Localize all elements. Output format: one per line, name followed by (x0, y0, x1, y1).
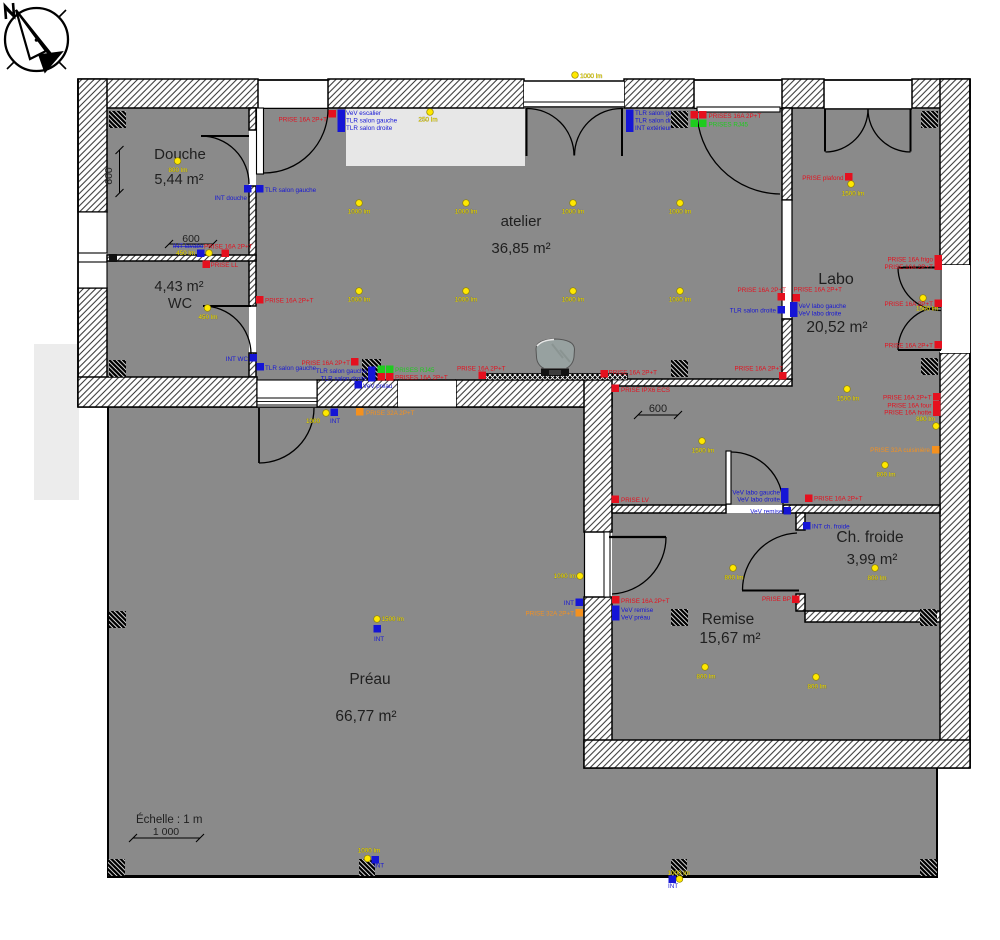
svg-text:VeV labo droite: VeV labo droite (799, 311, 842, 318)
svg-text:PRISE 32A 2P+T: PRISE 32A 2P+T (366, 410, 415, 417)
svg-text:600: 600 (103, 167, 115, 185)
svg-text:66,77 m²: 66,77 m² (335, 708, 396, 725)
svg-text:PRISE 16A 2P+T: PRISE 16A 2P+T (883, 395, 932, 402)
svg-text:PRISE 16A 2P+T: PRISE 16A 2P+T (265, 298, 314, 305)
svg-text:1000 lm: 1000 lm (580, 73, 602, 80)
svg-text:PRISES 16A 2P+T: PRISES 16A 2P+T (395, 375, 448, 382)
svg-text:VeV labo gauche: VeV labo gauche (732, 490, 780, 497)
svg-text:1000 lm: 1000 lm (554, 573, 576, 580)
svg-text:1000 lm: 1000 lm (455, 209, 477, 216)
svg-text:3,99 m²: 3,99 m² (847, 551, 898, 568)
svg-text:PRISE 16A frigo: PRISE 16A frigo (887, 257, 933, 264)
svg-text:VeV escalier: VeV escalier (346, 110, 381, 117)
svg-text:Échelle : 1 m: Échelle : 1 m (136, 813, 202, 826)
svg-text:PRISE 16A 2P+T: PRISE 16A 2P+T (885, 301, 934, 308)
svg-text:PRISE 16A hotte: PRISE 16A hotte (884, 410, 932, 417)
svg-text:VeV préau: VeV préau (621, 615, 651, 622)
svg-text:1000 lm: 1000 lm (669, 297, 691, 304)
svg-text:1000 lm: 1000 lm (669, 209, 691, 216)
svg-text:VeV préau: VeV préau (363, 383, 393, 390)
svg-text:PRISE 16A 2P+T: PRISE 16A 2P+T (814, 496, 863, 503)
svg-text:800 lm: 800 lm (868, 575, 887, 582)
svg-text:PRISE 16A 2P+T: PRISE 16A 2P+T (885, 343, 934, 350)
svg-text:600: 600 (649, 403, 667, 415)
svg-text:PRISE 16A 2P+T: PRISE 16A 2P+T (457, 366, 506, 373)
svg-text:800 lm: 800 lm (169, 167, 188, 174)
svg-text:1 000: 1 000 (153, 826, 179, 838)
svg-text:1000: 1000 (306, 418, 321, 425)
svg-text:1000 lm: 1000 lm (562, 209, 584, 216)
svg-text:800 lm: 800 lm (808, 684, 827, 691)
svg-text:1000 lm: 1000 lm (358, 848, 380, 855)
svg-text:PRISE 32A 2P+T: PRISE 32A 2P+T (526, 611, 575, 618)
svg-text:TLR salon gauche: TLR salon gauche (346, 118, 398, 125)
svg-text:800 lm: 800 lm (916, 416, 935, 423)
svg-text:INT extérieur: INT extérieur (635, 125, 671, 132)
svg-text:VeV labo gauche: VeV labo gauche (799, 303, 847, 310)
svg-text:1500 lm: 1500 lm (692, 448, 714, 455)
svg-text:INT douche: INT douche (215, 195, 248, 202)
svg-text:PRISES RJ45: PRISES RJ45 (709, 122, 749, 129)
svg-text:250 lm: 250 lm (419, 117, 438, 124)
svg-text:PRISE 16A 2P+T: PRISE 16A 2P+T (204, 244, 253, 251)
svg-text:36,85 m²: 36,85 m² (491, 240, 550, 257)
svg-text:INT: INT (564, 600, 574, 607)
svg-text:PRISE 16A four: PRISE 16A four (887, 403, 931, 410)
svg-text:Préau: Préau (349, 671, 390, 688)
svg-text:VeV labo droite: VeV labo droite (737, 497, 780, 504)
svg-text:INT: INT (374, 863, 384, 870)
svg-text:800 lm: 800 lm (697, 674, 716, 681)
svg-text:20,52 m²: 20,52 m² (806, 319, 867, 336)
svg-text:PRISE 16A 2P+T: PRISE 16A 2P+T (735, 366, 784, 373)
svg-text:PRISE 16A 2P+T: PRISE 16A 2P+T (885, 264, 934, 271)
svg-text:PRISES RJ45: PRISES RJ45 (395, 367, 435, 374)
svg-text:Ch. froide: Ch. froide (836, 529, 903, 546)
svg-text:1500 lm: 1500 lm (837, 396, 859, 403)
svg-text:WC: WC (168, 296, 192, 312)
svg-text:800 lm: 800 lm (877, 472, 896, 479)
svg-text:450 lm: 450 lm (176, 250, 195, 257)
svg-text:800 lm: 800 lm (725, 575, 744, 582)
svg-text:PRISE BP: PRISE BP (762, 596, 791, 603)
svg-text:1500 lm: 1500 lm (382, 616, 404, 623)
svg-text:PRISE IPX6 ECS: PRISE IPX6 ECS (621, 387, 670, 394)
svg-text:1000 lm: 1000 lm (455, 297, 477, 304)
svg-text:Labo: Labo (818, 271, 854, 288)
svg-text:PRISE 32A cuisinière: PRISE 32A cuisinière (870, 447, 930, 454)
svg-text:TLR salon gauche: TLR salon gauche (265, 187, 317, 194)
svg-text:15,67 m²: 15,67 m² (699, 630, 760, 647)
svg-text:1000 lm: 1000 lm (348, 297, 370, 304)
svg-text:PRISE LL: PRISE LL (211, 262, 239, 269)
svg-text:TLR salon droite: TLR salon droite (730, 308, 777, 315)
svg-text:TLR salon gauche: TLR salon gauche (316, 368, 368, 375)
svg-text:INT WC: INT WC (226, 356, 249, 363)
svg-text:INT: INT (374, 636, 384, 643)
svg-text:PRISES 16A 2P+T: PRISES 16A 2P+T (709, 113, 762, 120)
svg-text:INT lavabo: INT lavabo (173, 243, 204, 250)
svg-text:INT: INT (330, 418, 340, 425)
svg-text:TLR salon droite: TLR salon droite (346, 125, 393, 132)
svg-text:PRISE 16A 2P+T: PRISE 16A 2P+T (621, 598, 670, 605)
svg-text:1000 lm: 1000 lm (348, 209, 370, 216)
svg-text:INT: INT (668, 883, 678, 890)
svg-text:PRISE 16A 2P+T: PRISE 16A 2P+T (279, 117, 328, 124)
svg-text:5,44 m²: 5,44 m² (154, 172, 203, 188)
svg-text:PRISE LV: PRISE LV (621, 497, 650, 504)
svg-text:PRISE 16A 2P+T: PRISE 16A 2P+T (302, 360, 351, 367)
svg-text:PRISE 16A 2P+T: PRISE 16A 2P+T (794, 287, 843, 294)
svg-text:450 lm: 450 lm (199, 314, 218, 321)
svg-text:atelier: atelier (501, 213, 542, 230)
svg-text:1000 lm: 1000 lm (562, 297, 584, 304)
svg-text:VeV remise: VeV remise (750, 509, 783, 516)
svg-text:INT ch. froide: INT ch. froide (812, 524, 850, 531)
svg-text:PRISE 16A 2P+T: PRISE 16A 2P+T (609, 370, 658, 377)
svg-text:PRISE plafond: PRISE plafond (802, 175, 844, 182)
svg-text:PRISE 16A 2P+T: PRISE 16A 2P+T (738, 287, 787, 294)
svg-text:1500 lm: 1500 lm (842, 191, 864, 198)
svg-text:VeV remise: VeV remise (621, 607, 654, 614)
svg-text:Remise: Remise (702, 611, 755, 628)
svg-text:4,43 m²: 4,43 m² (154, 279, 203, 295)
